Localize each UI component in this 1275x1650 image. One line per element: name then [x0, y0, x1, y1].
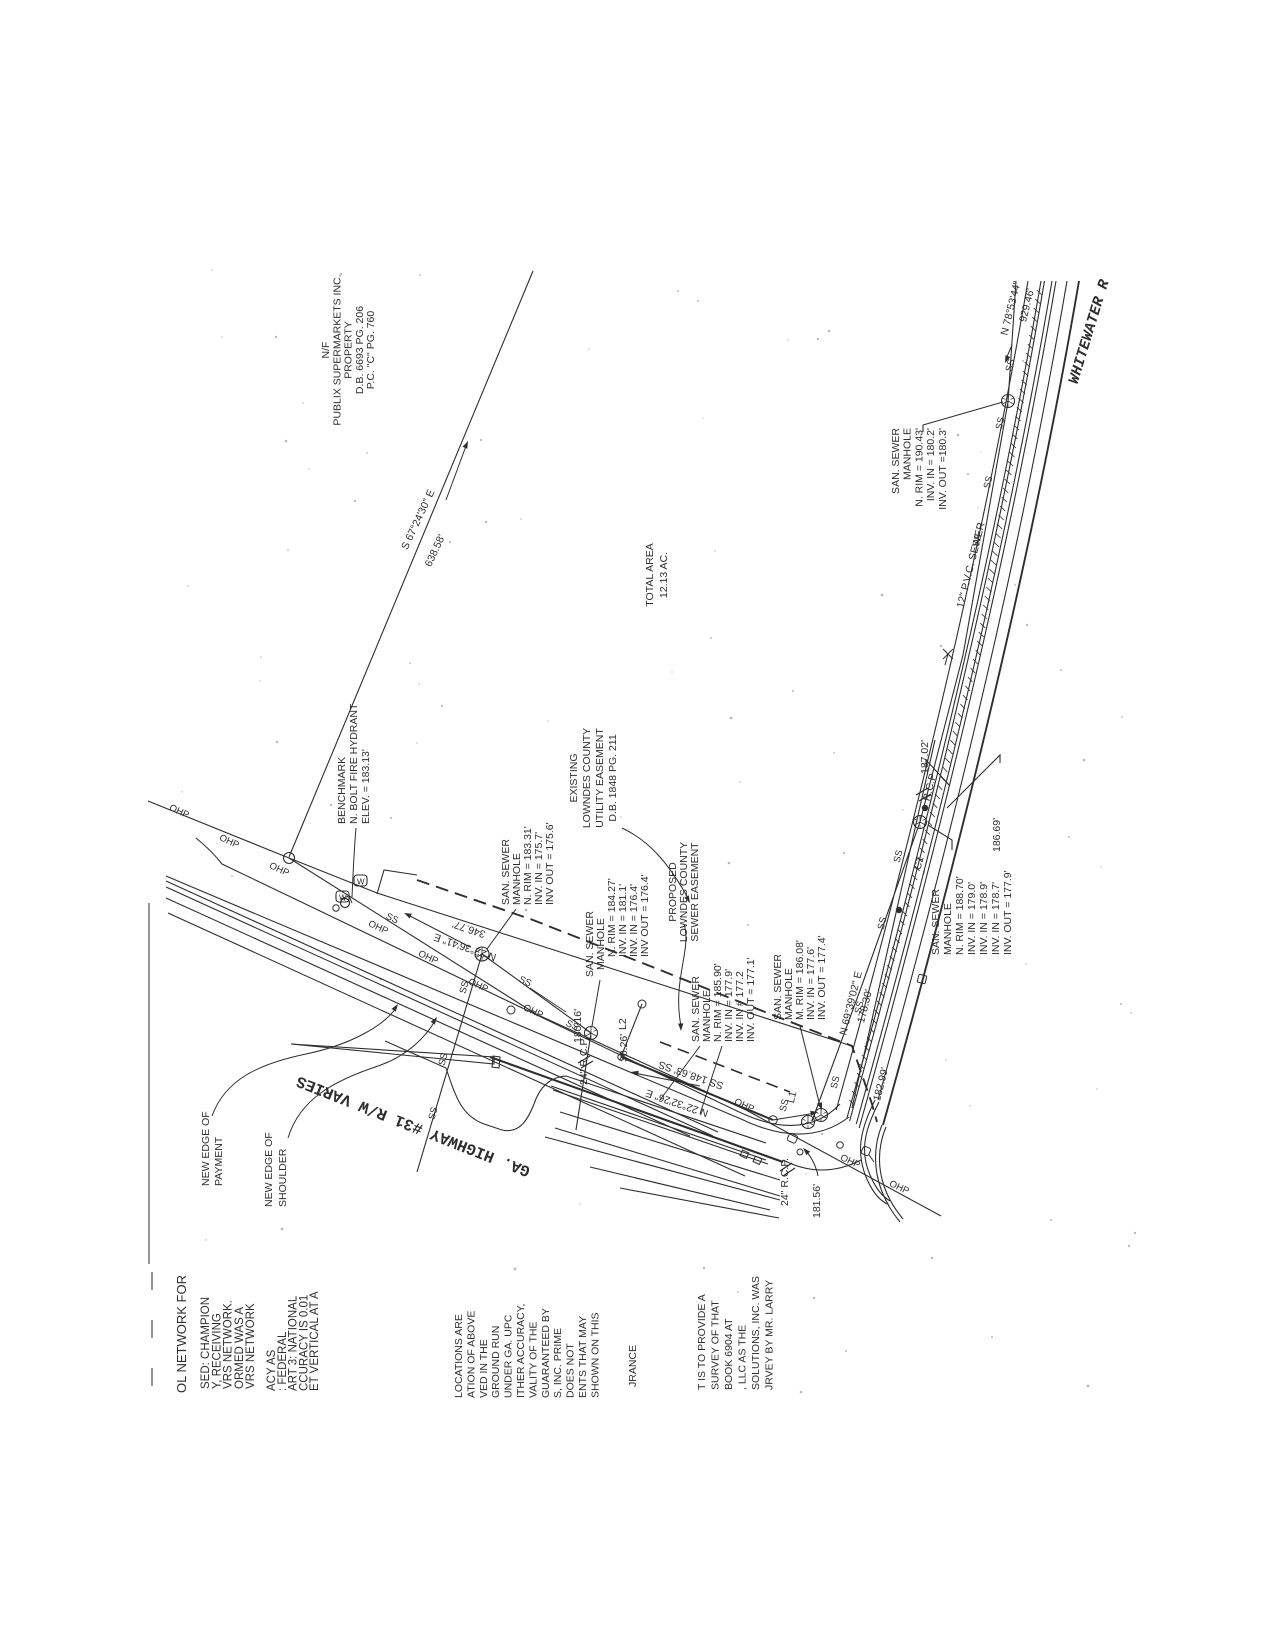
svg-text:SEWER EASEMENT: SEWER EASEMENT — [689, 842, 701, 942]
svg-text:BOOK 6904 AT: BOOK 6904 AT — [723, 1318, 735, 1390]
svg-text:L2: L2 — [617, 1018, 629, 1030]
svg-text:T IS TO PROVIDE A: T IS TO PROVIDE A — [696, 1294, 708, 1390]
svg-text:SED: CHAMPION: SED: CHAMPION — [200, 1297, 212, 1389]
svg-text:SHOULDER: SHOULDER — [277, 1148, 289, 1207]
svg-text:ORMED WAS A: ORMED WAS A — [234, 1307, 246, 1389]
svg-text:INV OUT = 176.4': INV OUT = 176.4' — [639, 874, 651, 957]
svg-text:INV. IN = 178.9': INV. IN = 178.9' — [978, 882, 990, 955]
svg-text:ET VERTICAL AT A: ET VERTICAL AT A — [309, 1291, 321, 1391]
svg-text:GROUND RUN: GROUND RUN — [490, 1326, 502, 1398]
svg-text:INV. OUT = 177.1': INV. OUT = 177.1' — [745, 957, 757, 1042]
svg-text:ATION OF ABOVE: ATION OF ABOVE — [465, 1311, 477, 1398]
svg-text:LOCATIONS ARE: LOCATIONS ARE — [453, 1314, 465, 1398]
svg-text:S, INC. PRIME: S, INC. PRIME — [552, 1328, 564, 1398]
svg-text:ELEV. = 183.13': ELEV. = 183.13' — [360, 749, 372, 824]
svg-text:GUARANTEED BY: GUARANTEED BY — [540, 1308, 552, 1398]
svg-text:30.26': 30.26' — [618, 1034, 630, 1062]
svg-text:187.02': 187.02' — [919, 740, 931, 774]
svg-text:D.B. 1848 PG. 211: D.B. 1848 PG. 211 — [607, 734, 619, 822]
svg-text:UTILITY EASEMENT: UTILITY EASEMENT — [594, 728, 606, 828]
svg-text:SURVEY OF THAT: SURVEY OF THAT — [710, 1300, 722, 1390]
svg-text:P.C. "C" PG. 760: P.C. "C" PG. 760 — [365, 311, 377, 390]
svg-text:ENTS THAT MAY: ENTS THAT MAY — [577, 1316, 589, 1398]
svg-text:N. BOLT FIRE HYDRANT: N. BOLT FIRE HYDRANT — [348, 703, 360, 824]
svg-text:MANHOLE: MANHOLE — [942, 903, 954, 955]
svg-text:VALITY OF THE: VALITY OF THE — [527, 1322, 539, 1398]
svg-text:186.69': 186.69' — [991, 818, 1003, 852]
svg-text:JRANCE: JRANCE — [627, 1345, 639, 1387]
svg-text:N/F: N/F — [320, 342, 332, 359]
svg-text:181.56': 181.56' — [811, 1184, 823, 1218]
svg-text:INV. OUT = 177.9': INV. OUT = 177.9' — [1002, 870, 1014, 955]
svg-text:SOLUTIONS, INC. WAS: SOLUTIONS, INC. WAS — [750, 1276, 762, 1390]
svg-text:INV OUT = 175.6': INV OUT = 175.6' — [544, 822, 556, 905]
svg-text:VRS NETWORK.: VRS NETWORK. — [223, 1300, 235, 1389]
svg-text:Y, RECEIVING: Y, RECEIVING — [211, 1313, 223, 1389]
svg-text:JRVEY BY MR. LARRY: JRVEY BY MR. LARRY — [764, 1280, 776, 1390]
svg-text:NEW EDGE OF: NEW EDGE OF — [263, 1132, 275, 1207]
svg-text:INV. OUT = 177.4': INV. OUT = 177.4' — [816, 935, 828, 1020]
svg-text:W: W — [339, 894, 347, 903]
svg-text:N. RIM = 188.70': N. RIM = 188.70' — [954, 876, 966, 955]
svg-text:INV. IN = 178.7': INV. IN = 178.7' — [990, 882, 1002, 955]
svg-text:, LLC AS THE: , LLC AS THE — [737, 1325, 749, 1390]
svg-text:PUBLIX SUPERMARKETS INC.: PUBLIX SUPERMARKETS INC. — [331, 274, 343, 425]
svg-text:OL NETWORK FOR: OL NETWORK FOR — [174, 1275, 189, 1393]
svg-text:VRS NETWORK: VRS NETWORK — [245, 1303, 257, 1389]
svg-text:EXISTING: EXISTING — [568, 753, 580, 802]
svg-text:SAN. SEWER: SAN. SEWER — [930, 889, 942, 955]
svg-text:LOWNDES COUNTY: LOWNDES COUNTY — [581, 728, 593, 828]
svg-text:TOTAL AREA: TOTAL AREA — [644, 543, 656, 606]
svg-text:UNDER GA. UPC: UNDER GA. UPC — [503, 1314, 515, 1398]
svg-text:W: W — [357, 878, 365, 887]
svg-text:NEW EDGE OF: NEW EDGE OF — [200, 1111, 212, 1186]
svg-text:12.13 AC.: 12.13 AC. — [658, 552, 670, 598]
svg-text:INV. IN = 179.0': INV. IN = 179.0' — [966, 882, 978, 955]
svg-text:PROPERTY: PROPERTY — [343, 321, 355, 379]
svg-text:INV. IN = 180.2': INV. IN = 180.2' — [925, 428, 937, 501]
svg-text:VED IN THE: VED IN THE — [478, 1339, 490, 1398]
svg-text:D.B. 6693 PG. 206: D.B. 6693 PG. 206 — [354, 306, 366, 394]
svg-text:BENCHMARK: BENCHMARK — [336, 757, 348, 824]
svg-text:SHOWN ON THIS: SHOWN ON THIS — [589, 1312, 601, 1398]
svg-text:DOES NOT: DOES NOT — [565, 1343, 577, 1398]
svg-text:PAYMENT: PAYMENT — [213, 1136, 225, 1186]
svg-text:MANHOLE: MANHOLE — [902, 428, 914, 480]
svg-text:SAN. SEWER: SAN. SEWER — [890, 428, 902, 494]
svg-text:ITHER ACCURACY,: ITHER ACCURACY, — [515, 1304, 527, 1398]
svg-text:INV. OUT =180.3': INV. OUT =180.3' — [937, 428, 949, 510]
svg-text:N. RIM = 190.43': N. RIM = 190.43' — [913, 428, 925, 507]
